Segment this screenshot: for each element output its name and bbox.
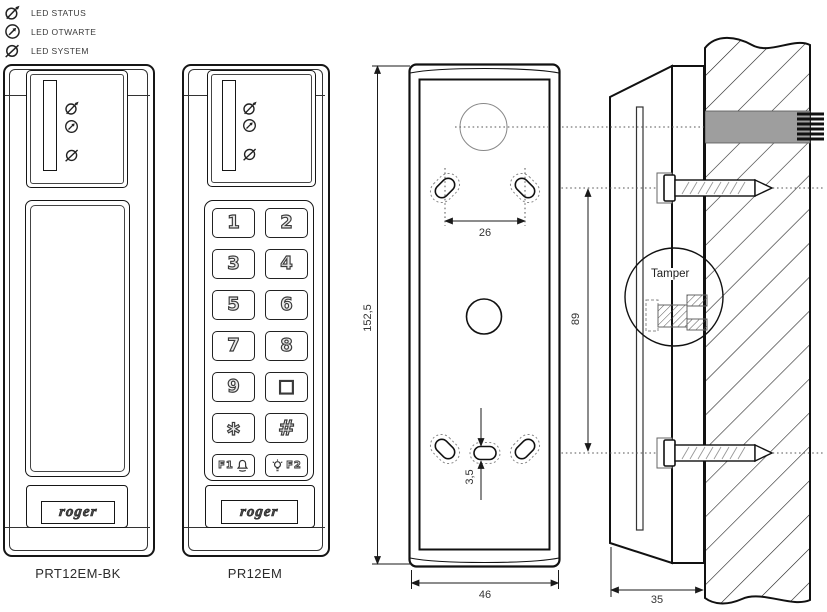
key-8: 8 bbox=[265, 331, 308, 361]
technical-drawing-page: LED STATUS LED OTWARTE LED SYSTEM roger bbox=[0, 0, 827, 612]
key-6: 6 bbox=[265, 290, 308, 320]
key-0-label: □ bbox=[278, 378, 295, 396]
dimension-46 bbox=[412, 570, 559, 589]
dim-label-slot-width: 3,5 bbox=[464, 459, 476, 495]
dimension-152-5 bbox=[372, 66, 412, 564]
led-open-icon bbox=[4, 23, 21, 40]
dim-label-width: 46 bbox=[470, 589, 500, 601]
tamper-label: Tamper bbox=[648, 268, 692, 280]
bell-icon bbox=[236, 459, 249, 472]
cable-conduit bbox=[705, 111, 810, 143]
key-hash: # bbox=[265, 413, 308, 443]
key-star: ∗ bbox=[212, 413, 255, 443]
dim-label-depth: 35 bbox=[642, 594, 672, 606]
key-4: 4 bbox=[265, 249, 308, 279]
key-5: 5 bbox=[212, 290, 255, 320]
legend-label: LED SYSTEM bbox=[31, 46, 89, 56]
key-1-label: 1 bbox=[227, 214, 240, 232]
center-hole bbox=[467, 299, 502, 334]
dim-label-hole-spacing-v: 89 bbox=[570, 301, 582, 337]
light-pipe-profile bbox=[637, 107, 644, 530]
key-9: 9 bbox=[212, 372, 255, 402]
legend-item-otwarte: LED OTWARTE bbox=[4, 22, 96, 41]
key-f2: F2 bbox=[265, 454, 308, 477]
led-window-bar bbox=[43, 80, 57, 171]
led-status-icon bbox=[64, 100, 80, 116]
led-system-icon bbox=[4, 42, 21, 59]
key-f1-label: F1 bbox=[218, 460, 234, 471]
key-5-label: 5 bbox=[227, 296, 240, 314]
key-9-label: 9 bbox=[227, 378, 240, 396]
key-7-label: 7 bbox=[227, 337, 240, 355]
roger-logo: roger bbox=[41, 501, 115, 524]
led-system-icon bbox=[64, 147, 80, 163]
legend-label: LED STATUS bbox=[31, 8, 86, 18]
rear-view bbox=[372, 65, 588, 590]
key-8-label: 8 bbox=[280, 337, 293, 355]
led-system-icon bbox=[242, 146, 258, 162]
led-status-icon bbox=[4, 4, 21, 21]
key-3-label: 3 bbox=[227, 255, 240, 273]
keypad-panel: 1 2 3 4 5 6 7 8 9 □ ∗ # F1 F2 bbox=[204, 200, 314, 481]
led-open-icon bbox=[64, 119, 79, 134]
key-2: 2 bbox=[265, 208, 308, 238]
roger-logo-text: roger bbox=[239, 504, 279, 521]
led-window-bar bbox=[222, 80, 236, 171]
legend-item-status: LED STATUS bbox=[4, 3, 96, 22]
device-caption: PRT12EM-BK bbox=[3, 566, 153, 581]
roger-logo-text: roger bbox=[58, 504, 98, 521]
led-legend: LED STATUS LED OTWARTE LED SYSTEM bbox=[4, 3, 96, 60]
dim-label-hole-spacing-h: 26 bbox=[470, 227, 500, 239]
key-0: □ bbox=[265, 372, 308, 402]
key-3: 3 bbox=[212, 249, 255, 279]
key-star-label: ∗ bbox=[225, 418, 242, 438]
dim-label-height: 152,5 bbox=[362, 298, 374, 338]
key-4-label: 4 bbox=[280, 255, 293, 273]
legend-item-system: LED SYSTEM bbox=[4, 41, 96, 60]
key-2-label: 2 bbox=[280, 214, 293, 232]
roger-logo: roger bbox=[221, 500, 298, 524]
key-7: 7 bbox=[212, 331, 255, 361]
bulb-icon bbox=[271, 459, 284, 472]
device-caption: PR12EM bbox=[182, 566, 328, 581]
legend-label: LED OTWARTE bbox=[31, 27, 96, 37]
card-panel bbox=[25, 200, 130, 477]
key-f2-label: F2 bbox=[286, 460, 302, 471]
key-1: 1 bbox=[212, 208, 255, 238]
key-hash-label: # bbox=[278, 418, 295, 438]
led-status-icon bbox=[242, 100, 258, 116]
card-panel-inner-line bbox=[30, 205, 125, 472]
led-open-icon bbox=[242, 118, 257, 133]
key-f1: F1 bbox=[212, 454, 255, 477]
key-6-label: 6 bbox=[280, 296, 293, 314]
